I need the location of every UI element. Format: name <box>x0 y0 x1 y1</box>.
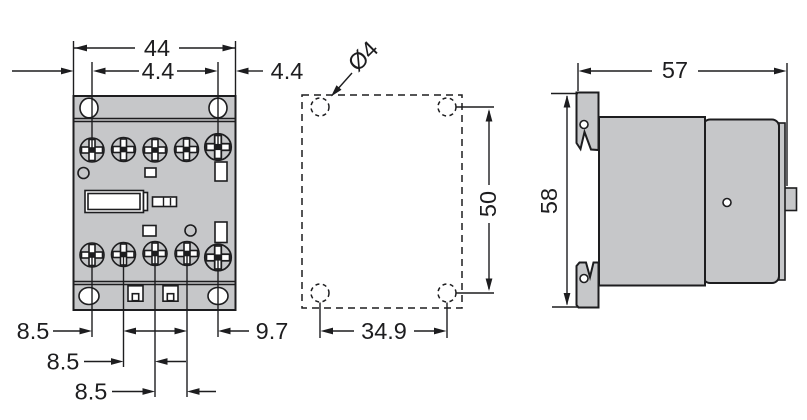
drill-hole <box>438 98 456 116</box>
arrowhead <box>175 328 188 335</box>
dim-label-hole-diameter: Ø4 <box>343 36 384 77</box>
dim-label-pitch-4: 9.7 <box>256 318 289 344</box>
face-slot <box>145 168 156 177</box>
dim-label-pitch-1: 8.5 <box>17 318 50 344</box>
arrowhead <box>187 388 200 395</box>
din-rail-hook-bottom <box>577 263 599 308</box>
housing-hole <box>723 199 731 207</box>
arrowhead <box>143 388 156 395</box>
drill-hole <box>311 284 329 302</box>
dim-label-front-margin-left: 4.4 <box>142 58 175 84</box>
auxiliary-slot <box>215 222 227 243</box>
dim-label-plan-width: 34.9 <box>361 318 407 344</box>
arrowhead <box>486 279 493 292</box>
dim-label-front-margin-right: 4.4 <box>271 58 304 84</box>
drilling-plan-outline <box>302 95 462 308</box>
auxiliary-slot <box>215 162 227 181</box>
arrowhead <box>80 328 93 335</box>
arrowhead <box>75 45 88 52</box>
arrowhead <box>124 328 137 335</box>
dim-label-side-width: 57 <box>662 57 688 83</box>
side-view <box>577 93 797 308</box>
dimensional-drawing-page: 44 4.4 4.4 8.5 <box>0 0 807 420</box>
dim-label-plan-height: 50 <box>475 191 501 217</box>
indicator-switch <box>153 197 177 207</box>
arrowhead <box>223 45 236 52</box>
terminal-screw <box>143 138 167 162</box>
arrowhead <box>236 68 249 75</box>
dimension-pitch-2: 8.5 <box>47 349 186 375</box>
drilling-plan-view: Ø4 50 34.9 <box>302 36 501 344</box>
snap-clip <box>163 286 178 301</box>
drill-hole <box>438 284 456 302</box>
arrowhead <box>321 328 334 335</box>
arrowhead <box>111 358 124 365</box>
dimension-pitch-1: 8.5 <box>17 318 187 344</box>
arrowhead <box>61 68 74 75</box>
arrowhead <box>486 109 493 122</box>
dimension-pitch-3: 8.5 <box>75 379 216 405</box>
dimension-hole-diameter: Ø4 <box>331 36 383 97</box>
face-slot <box>143 226 156 237</box>
arrowhead <box>564 95 571 108</box>
rear-housing <box>703 120 779 284</box>
rear-tab <box>785 188 797 211</box>
dim-label-pitch-2: 8.5 <box>47 349 80 375</box>
terminal-screw <box>112 138 136 162</box>
drill-hole <box>311 98 329 116</box>
arrowhead <box>564 293 571 306</box>
dim-label-pitch-3: 8.5 <box>75 379 108 405</box>
hook-hole <box>580 121 588 129</box>
contactor-dimensional-drawing: 44 4.4 4.4 8.5 <box>0 0 807 420</box>
hook-hole <box>580 275 588 283</box>
dim-label-side-height: 58 <box>536 188 562 214</box>
mounting-hole <box>79 288 99 305</box>
arrowhead <box>218 328 231 335</box>
dimension-front-margins: 4.4 4.4 <box>12 58 303 84</box>
arrowhead <box>434 328 447 335</box>
arrowhead <box>579 68 592 75</box>
label-window-latch <box>144 193 148 211</box>
arrowhead <box>155 358 168 365</box>
dimension-side-height: 58 <box>536 94 578 308</box>
terminal-screw <box>175 138 199 162</box>
arrowhead <box>774 68 787 75</box>
side-body <box>599 117 705 286</box>
mounting-hole <box>80 98 98 118</box>
snap-clip <box>128 286 143 301</box>
arrowhead <box>93 68 106 75</box>
dimension-pitch-4: 9.7 <box>218 318 288 344</box>
arrowhead <box>205 68 218 75</box>
